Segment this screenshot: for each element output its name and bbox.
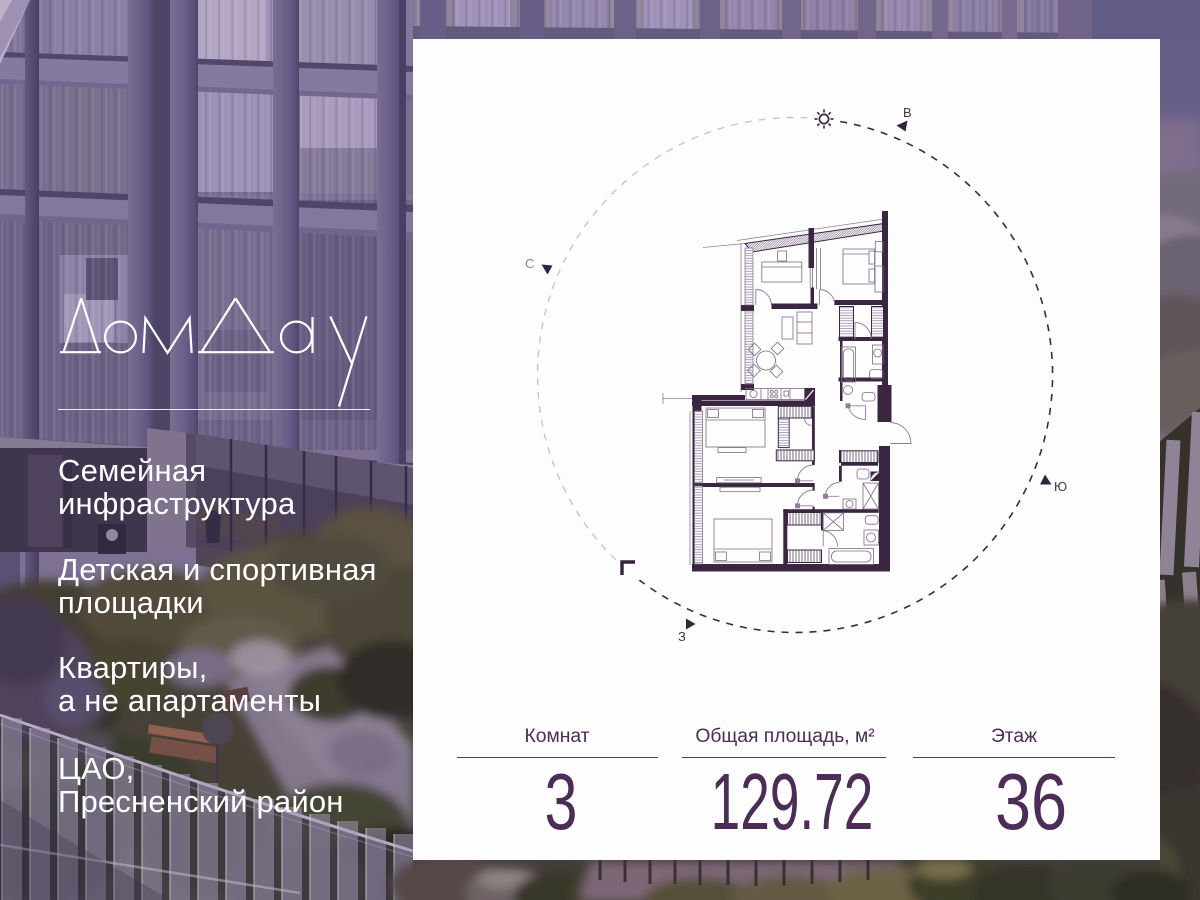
svg-text:Ю: Ю [1054, 479, 1067, 494]
svg-text:З: З [678, 629, 686, 644]
svg-text:В: В [903, 105, 912, 120]
svg-text:С: С [525, 256, 534, 271]
